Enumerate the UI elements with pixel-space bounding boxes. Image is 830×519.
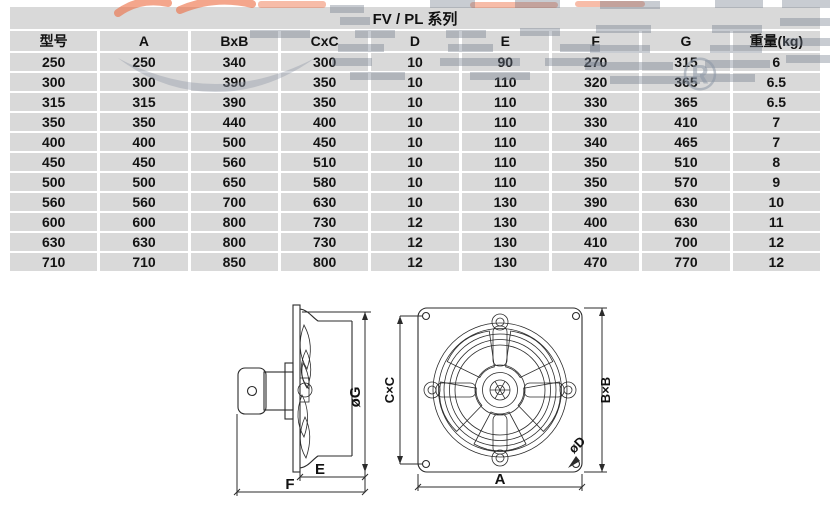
table-cell: 11: [733, 213, 820, 231]
hub: [475, 365, 525, 415]
table-body: 2502503403001090270315630030039035010110…: [10, 53, 820, 271]
table-cell: 400: [100, 133, 187, 151]
table-cell: 465: [642, 133, 729, 151]
column-header: 重量(kg): [733, 31, 820, 51]
table-cell: 130: [462, 213, 549, 231]
table-cell: 560: [10, 193, 97, 211]
table-cell: 6.5: [733, 73, 820, 91]
bolt-hole: [423, 313, 430, 320]
table-cell: 90: [462, 53, 549, 71]
table-cell: 330: [552, 113, 639, 131]
table-cell: 110: [462, 133, 549, 151]
title-row: FV / PL 系列: [10, 7, 820, 29]
table-cell: 700: [191, 193, 278, 211]
table-cell: 10: [371, 73, 458, 91]
table-cell: 7: [733, 133, 820, 151]
table-row: 450450560510101103505108: [10, 153, 820, 171]
table-cell: 440: [191, 113, 278, 131]
table-cell: 365: [642, 73, 729, 91]
table-cell: 110: [462, 113, 549, 131]
table-cell: 400: [281, 113, 368, 131]
table-cell: 300: [100, 73, 187, 91]
table-cell: 6.5: [733, 93, 820, 111]
table-row: 300300390350101103203656.5: [10, 73, 820, 91]
table-cell: 630: [100, 233, 187, 251]
table-cell: 350: [552, 173, 639, 191]
table-cell: 730: [281, 213, 368, 231]
column-header: 型号: [10, 31, 97, 51]
table-row: 350350440400101103304107: [10, 113, 820, 131]
table-cell: 340: [552, 133, 639, 151]
table-cell: 10: [371, 153, 458, 171]
table-cell: 130: [462, 193, 549, 211]
table-cell: 7: [733, 113, 820, 131]
dimension-d-label: øD: [565, 433, 588, 456]
table-cell: 400: [10, 133, 97, 151]
table-cell: 600: [10, 213, 97, 231]
table-cell: 390: [191, 73, 278, 91]
table-cell: 315: [100, 93, 187, 111]
bellmouth-bottom: [300, 456, 352, 468]
table-cell: 710: [10, 253, 97, 271]
table-cell: 800: [191, 213, 278, 231]
table-cell: 500: [100, 173, 187, 191]
table-row: 315315390350101103303656.5: [10, 93, 820, 111]
table-cell: 630: [10, 233, 97, 251]
table-cell: 110: [462, 93, 549, 111]
column-header: E: [462, 31, 549, 51]
table-cell: 700: [642, 233, 729, 251]
motor-cap: [238, 368, 266, 414]
dimension-g-label: øG: [347, 387, 364, 408]
table-cell: 130: [462, 233, 549, 251]
table-cell: 710: [100, 253, 187, 271]
table-cell: 10: [371, 113, 458, 131]
column-header: BxB: [191, 31, 278, 51]
table-cell: 350: [100, 113, 187, 131]
table-cell: 350: [552, 153, 639, 171]
table-cell: 500: [10, 173, 97, 191]
dimension-e-label: E: [315, 461, 325, 478]
table-cell: 510: [642, 153, 729, 171]
table-cell: 570: [642, 173, 729, 191]
column-header: A: [100, 31, 187, 51]
table-row: 500500650580101103505709: [10, 173, 820, 191]
table-row: 7107108508001213047077012: [10, 253, 820, 271]
table-row: 5605607006301013039063010: [10, 193, 820, 211]
table-cell: 12: [733, 233, 820, 251]
table-cell: 8: [733, 153, 820, 171]
table-cell: 250: [10, 53, 97, 71]
table-cell: 12: [371, 233, 458, 251]
table-cell: 10: [733, 193, 820, 211]
table-cell: 500: [191, 133, 278, 151]
side-panel-plate: [293, 305, 300, 472]
table-cell: 730: [281, 233, 368, 251]
table-cell: 510: [281, 153, 368, 171]
table-cell: 630: [642, 213, 729, 231]
dimension-cc-label: C×C: [382, 376, 397, 403]
table-cell: 630: [281, 193, 368, 211]
table-cell: 10: [371, 173, 458, 191]
table-cell: 410: [642, 113, 729, 131]
table-cell: 650: [191, 173, 278, 191]
table-cell: 130: [462, 253, 549, 271]
table-cell: 350: [281, 73, 368, 91]
table-cell: 315: [642, 53, 729, 71]
technical-drawings: øG E F: [0, 295, 830, 519]
table-cell: 270: [552, 53, 639, 71]
table-cell: 10: [371, 93, 458, 111]
fan-blades: [434, 325, 566, 451]
motor-flange: [285, 363, 293, 419]
dimension-f-label: F: [285, 476, 294, 493]
table-cell: 600: [100, 213, 187, 231]
column-header: CxC: [281, 31, 368, 51]
column-header: G: [642, 31, 729, 51]
table-cell: 300: [281, 53, 368, 71]
table-cell: 320: [552, 73, 639, 91]
table-cell: 450: [100, 153, 187, 171]
table-cell: 450: [281, 133, 368, 151]
table-row: 25025034030010902703156: [10, 53, 820, 71]
table-cell: 365: [642, 93, 729, 111]
table-cell: 850: [191, 253, 278, 271]
table-cell: 800: [191, 233, 278, 251]
bolt-hole: [423, 461, 430, 468]
table-cell: 12: [733, 253, 820, 271]
table-cell: 110: [462, 73, 549, 91]
bellmouth-top: [300, 309, 352, 321]
column-header: D: [371, 31, 458, 51]
side-view-drawing: øG E F: [234, 305, 371, 496]
page: FV / PL 系列 型号ABxBCxCDEFG重量(kg) 250250340…: [0, 0, 830, 519]
front-view-drawing: C×C B×B A øD: [382, 308, 613, 491]
motor-body: [264, 372, 293, 410]
impeller-hub: [300, 378, 309, 402]
table-cell: 10: [371, 133, 458, 151]
cable-hole: [248, 387, 257, 396]
table-cell: 340: [191, 53, 278, 71]
table-cell: 390: [552, 193, 639, 211]
table-cell: 560: [191, 153, 278, 171]
table-cell: 560: [100, 193, 187, 211]
table-row: 6306308007301213041070012: [10, 233, 820, 251]
table-cell: 10: [371, 193, 458, 211]
table-cell: 9: [733, 173, 820, 191]
table-row: 6006008007301213040063011: [10, 213, 820, 231]
table-cell: 300: [10, 73, 97, 91]
table-cell: 470: [552, 253, 639, 271]
table-title: FV / PL 系列: [10, 7, 820, 29]
bolt-hole: [573, 313, 580, 320]
dimension-a-label: A: [495, 471, 506, 488]
table-cell: 250: [100, 53, 187, 71]
column-header: F: [552, 31, 639, 51]
table-cell: 6: [733, 53, 820, 71]
table-cell: 630: [642, 193, 729, 211]
table-cell: 770: [642, 253, 729, 271]
table-cell: 12: [371, 213, 458, 231]
table-cell: 350: [10, 113, 97, 131]
table-cell: 580: [281, 173, 368, 191]
spec-table: FV / PL 系列 型号ABxBCxCDEFG重量(kg) 250250340…: [7, 5, 823, 273]
table-cell: 315: [10, 93, 97, 111]
table-cell: 450: [10, 153, 97, 171]
table-row: 400400500450101103404657: [10, 133, 820, 151]
table-cell: 350: [281, 93, 368, 111]
table-cell: 110: [462, 153, 549, 171]
table-cell: 110: [462, 173, 549, 191]
table-cell: 400: [552, 213, 639, 231]
dimension-bb-label: B×B: [598, 377, 613, 403]
table-cell: 410: [552, 233, 639, 251]
table-cell: 10: [371, 53, 458, 71]
table-cell: 800: [281, 253, 368, 271]
table-cell: 390: [191, 93, 278, 111]
table-cell: 330: [552, 93, 639, 111]
table-cell: 12: [371, 253, 458, 271]
header-row: 型号ABxBCxCDEFG重量(kg): [10, 31, 820, 51]
